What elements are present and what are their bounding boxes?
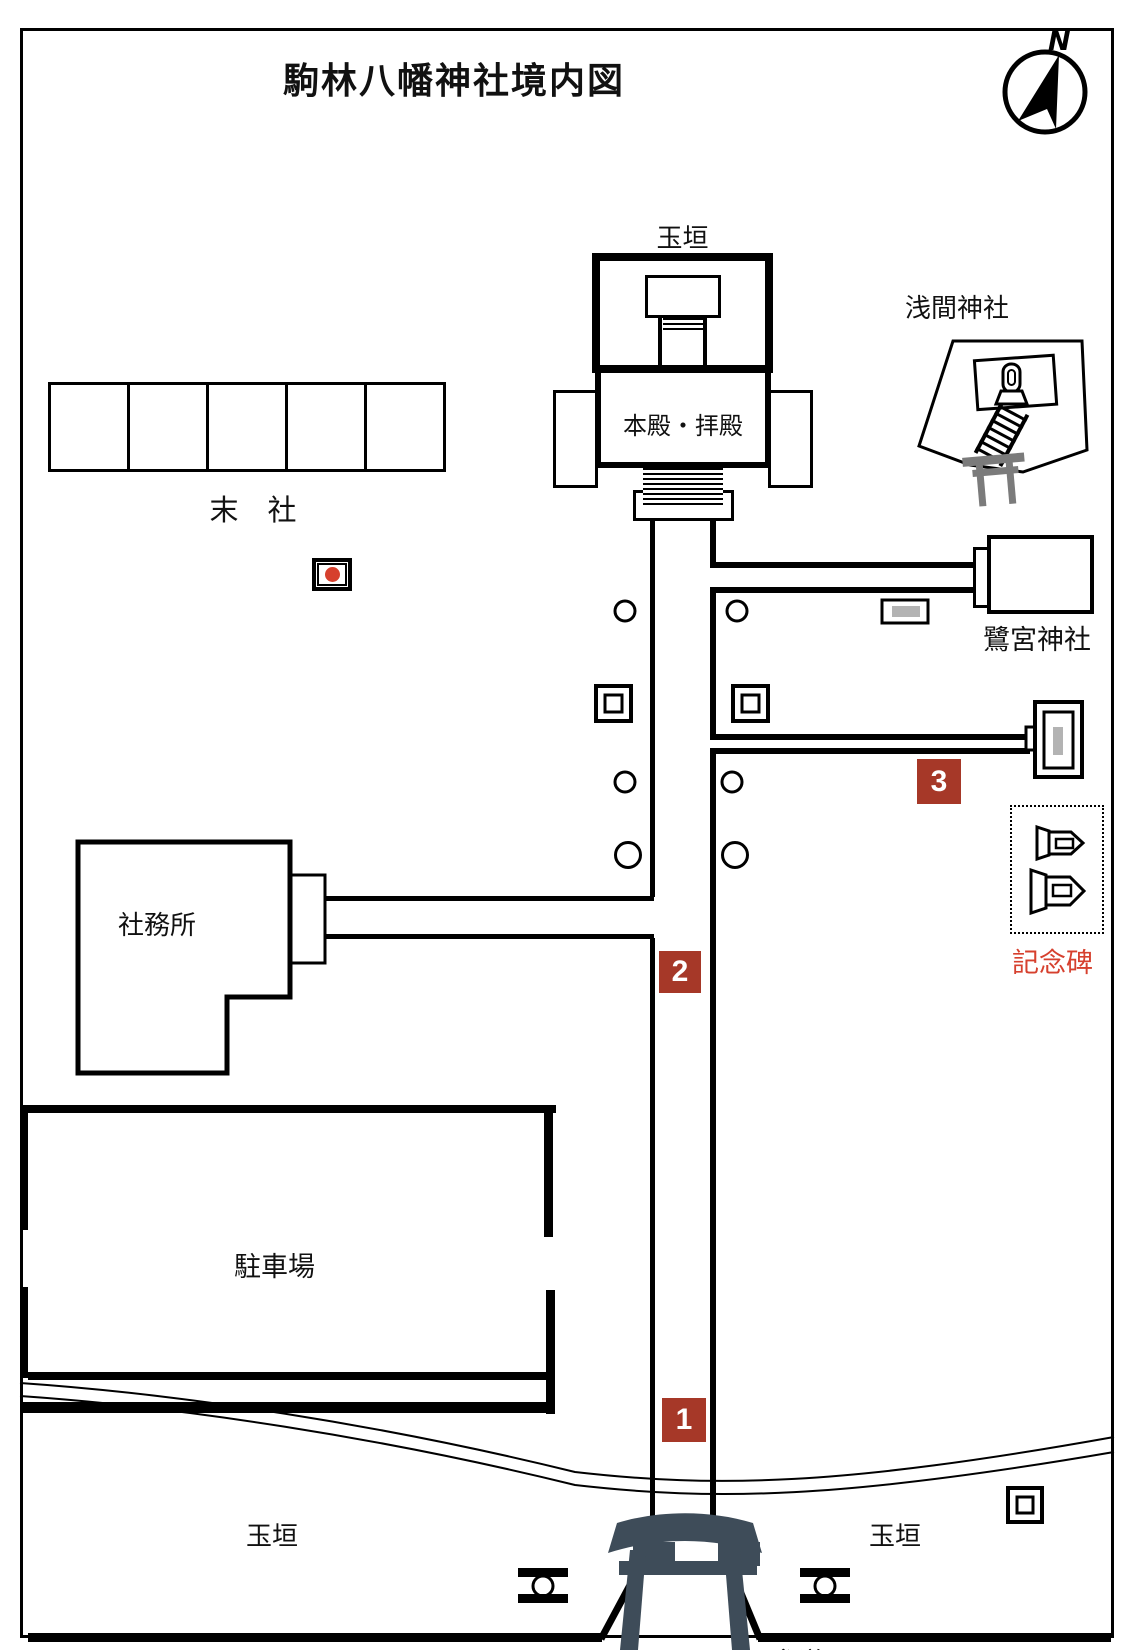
memorial-stele-icon xyxy=(1037,827,1083,859)
route-marker-2: 2 xyxy=(659,951,701,993)
stone-lantern-circle-icon xyxy=(723,843,748,868)
tamagaki-top-label: 玉垣 xyxy=(592,218,773,255)
stone-lantern-circle-icon xyxy=(616,843,641,868)
sengen-stele-base xyxy=(996,391,1027,404)
stone-basin-icon xyxy=(518,1568,568,1603)
stone-basin-icon xyxy=(800,1568,850,1603)
memorial-stele-icon xyxy=(1031,870,1084,913)
tamagaki-bottom-left-label: 玉垣 xyxy=(222,1516,322,1553)
office-building xyxy=(78,842,290,1073)
stone-lantern-circle-icon xyxy=(615,601,635,621)
map-shapes-layer: N xyxy=(0,0,1136,1650)
sengen-label: 浅間神社 xyxy=(905,288,1009,325)
shrine-grounds-map: N 1 2 3 玉垣 本殿・拝殿 末 社 浅間神社 鷺宮神社 社務所 駐車場 記… xyxy=(0,0,1136,1650)
street-curve-top xyxy=(20,1383,1114,1481)
office-porch xyxy=(290,875,325,963)
sengen-stele-icon xyxy=(1003,364,1020,392)
massha-label: 末 社 xyxy=(48,487,458,529)
memorial-label: 記念碑 xyxy=(1012,941,1093,980)
stone-lantern-circle-icon xyxy=(722,772,742,792)
stone-lantern-circle-icon xyxy=(727,601,747,621)
torii-gate-icon xyxy=(608,1513,762,1650)
saginomiya-label: 鷺宮神社 xyxy=(983,618,1091,657)
honden-label: 本殿・拝殿 xyxy=(595,406,771,441)
parking-label: 駐車場 xyxy=(234,1245,315,1284)
compass-north-label: N xyxy=(1048,26,1071,57)
small-torii-icon xyxy=(962,452,1028,507)
office-label: 社務所 xyxy=(118,905,196,942)
tamagaki-bottom-right-label: 玉垣 xyxy=(845,1516,945,1553)
page-title: 駒林八幡神社境内図 xyxy=(283,52,813,104)
stone-lantern-circle-icon xyxy=(615,772,635,792)
route-marker-1: 1 xyxy=(662,1398,706,1442)
route-marker-3: 3 xyxy=(917,759,961,804)
sando-label: 参道 xyxy=(772,1642,824,1650)
street-curve-bottom xyxy=(20,1396,1114,1494)
north-compass-icon: N xyxy=(1005,26,1085,132)
